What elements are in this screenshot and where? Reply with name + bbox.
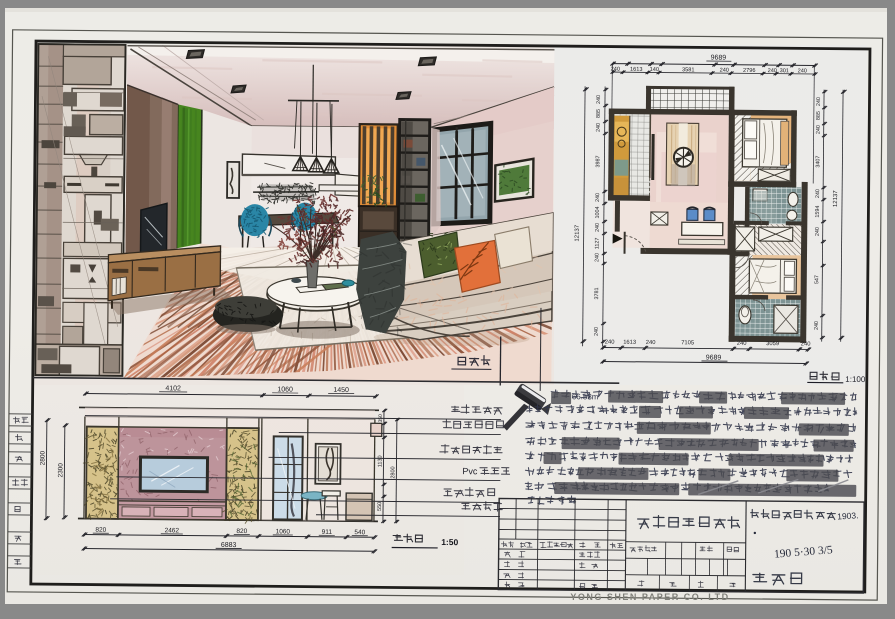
svg-text:9689: 9689 bbox=[711, 55, 727, 62]
svg-text:9689: 9689 bbox=[706, 354, 722, 361]
svg-text:1127: 1127 bbox=[595, 238, 601, 250]
svg-text:1594: 1594 bbox=[815, 206, 821, 218]
svg-text:240: 240 bbox=[595, 193, 601, 202]
svg-text:1060: 1060 bbox=[276, 528, 291, 535]
svg-text:2800: 2800 bbox=[390, 466, 396, 478]
svg-text:911: 911 bbox=[322, 529, 333, 536]
svg-text:2800: 2800 bbox=[39, 450, 46, 465]
svg-text:240: 240 bbox=[720, 68, 729, 74]
svg-text:885: 885 bbox=[816, 111, 822, 120]
svg-text:240: 240 bbox=[596, 123, 602, 132]
svg-text:2462: 2462 bbox=[165, 527, 180, 534]
svg-text:820: 820 bbox=[95, 527, 106, 534]
svg-text:240: 240 bbox=[594, 327, 600, 336]
svg-text:240: 240 bbox=[595, 223, 601, 232]
svg-text:1903.: 1903. bbox=[837, 510, 859, 521]
svg-text:240: 240 bbox=[801, 341, 811, 347]
svg-text:4102: 4102 bbox=[165, 385, 181, 392]
svg-text:240: 240 bbox=[596, 95, 602, 104]
svg-text:1613: 1613 bbox=[623, 340, 636, 346]
svg-text:3581: 3581 bbox=[682, 67, 695, 73]
svg-text:1004: 1004 bbox=[595, 206, 601, 218]
svg-text:1613: 1613 bbox=[630, 67, 643, 73]
svg-text:885: 885 bbox=[596, 109, 602, 118]
svg-text:7105: 7105 bbox=[681, 340, 694, 346]
svg-text:240: 240 bbox=[646, 340, 656, 346]
svg-text:240: 240 bbox=[814, 321, 820, 330]
svg-text:240: 240 bbox=[816, 97, 822, 106]
svg-text:240: 240 bbox=[798, 68, 807, 74]
svg-text:240: 240 bbox=[605, 340, 615, 346]
svg-text:140: 140 bbox=[650, 67, 659, 73]
svg-text:Pvc: Pvc bbox=[462, 466, 478, 476]
svg-text:240: 240 bbox=[815, 189, 821, 198]
svg-text:12137: 12137 bbox=[575, 224, 581, 241]
svg-text:550: 550 bbox=[377, 502, 383, 511]
svg-text:66.53m: 66.53m bbox=[572, 392, 599, 401]
svg-text:2300: 2300 bbox=[57, 463, 64, 478]
svg-text:240: 240 bbox=[816, 125, 822, 134]
svg-text:3059: 3059 bbox=[766, 341, 779, 347]
svg-text:YONG SHEN PAPER CO. LTD: YONG SHEN PAPER CO. LTD bbox=[570, 592, 729, 602]
svg-text:301: 301 bbox=[780, 68, 789, 74]
svg-text:6883: 6883 bbox=[221, 542, 237, 549]
svg-text:2796: 2796 bbox=[743, 68, 756, 74]
svg-text:1450: 1450 bbox=[333, 387, 349, 394]
svg-text:1060: 1060 bbox=[277, 386, 293, 393]
svg-text:1130: 1130 bbox=[377, 455, 383, 467]
svg-text:1:100: 1:100 bbox=[845, 375, 866, 384]
svg-text:547: 547 bbox=[814, 275, 820, 284]
svg-text:1:50: 1:50 bbox=[441, 537, 458, 547]
svg-text:3407: 3407 bbox=[815, 156, 821, 168]
svg-text:3781: 3781 bbox=[594, 287, 600, 299]
svg-text:3987: 3987 bbox=[595, 155, 601, 167]
svg-text:240: 240 bbox=[737, 341, 747, 347]
svg-text:820: 820 bbox=[236, 528, 247, 535]
svg-text:540: 540 bbox=[354, 529, 365, 536]
svg-text:12137: 12137 bbox=[833, 190, 839, 207]
svg-text:240: 240 bbox=[815, 227, 821, 236]
svg-text:240: 240 bbox=[594, 253, 600, 262]
